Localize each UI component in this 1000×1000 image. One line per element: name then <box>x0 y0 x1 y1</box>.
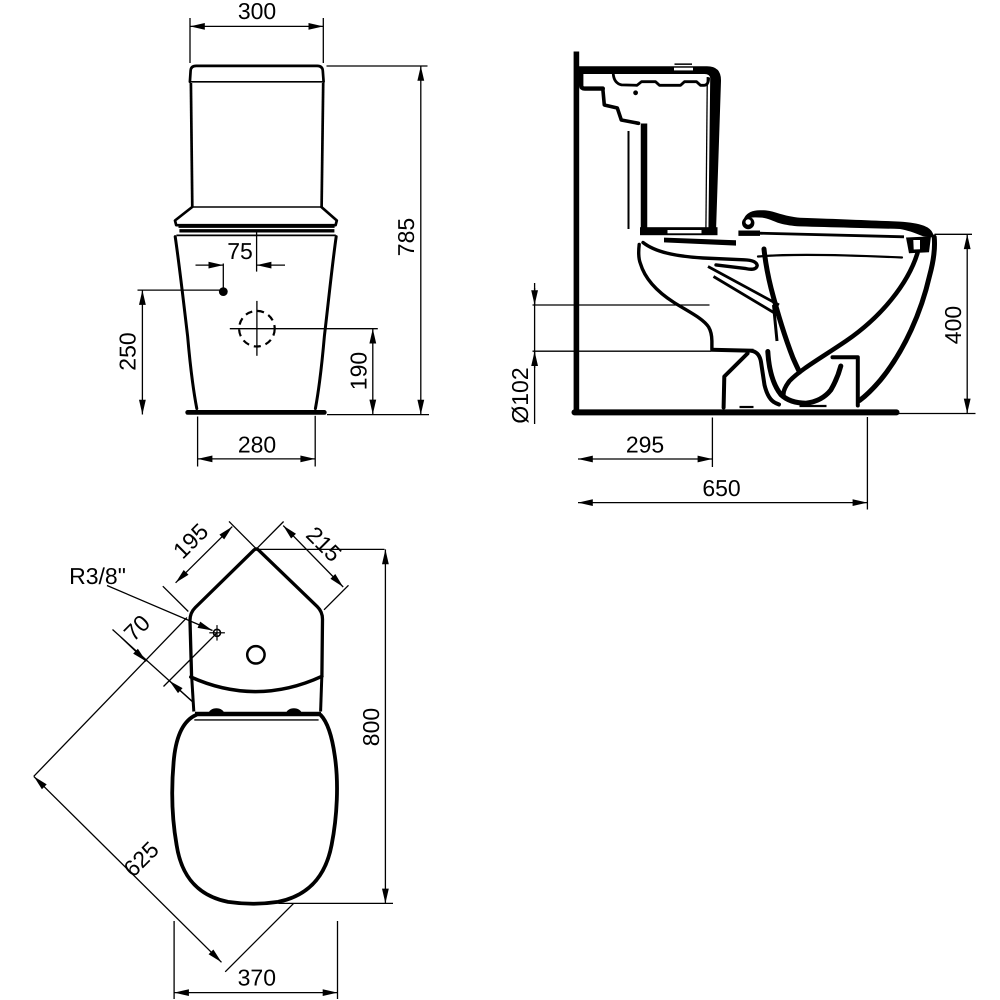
svg-text:370: 370 <box>238 964 276 990</box>
svg-text:300: 300 <box>238 0 276 24</box>
svg-text:295: 295 <box>626 431 664 457</box>
svg-text:650: 650 <box>702 475 740 501</box>
svg-text:75: 75 <box>227 238 253 264</box>
svg-text:785: 785 <box>393 218 419 256</box>
svg-text:190: 190 <box>346 352 372 390</box>
svg-text:280: 280 <box>238 432 276 458</box>
svg-text:250: 250 <box>114 332 140 370</box>
svg-text:800: 800 <box>358 708 384 746</box>
svg-text:400: 400 <box>940 306 966 344</box>
svg-text:Ø102: Ø102 <box>507 367 533 423</box>
svg-text:R3/8": R3/8" <box>69 563 126 589</box>
